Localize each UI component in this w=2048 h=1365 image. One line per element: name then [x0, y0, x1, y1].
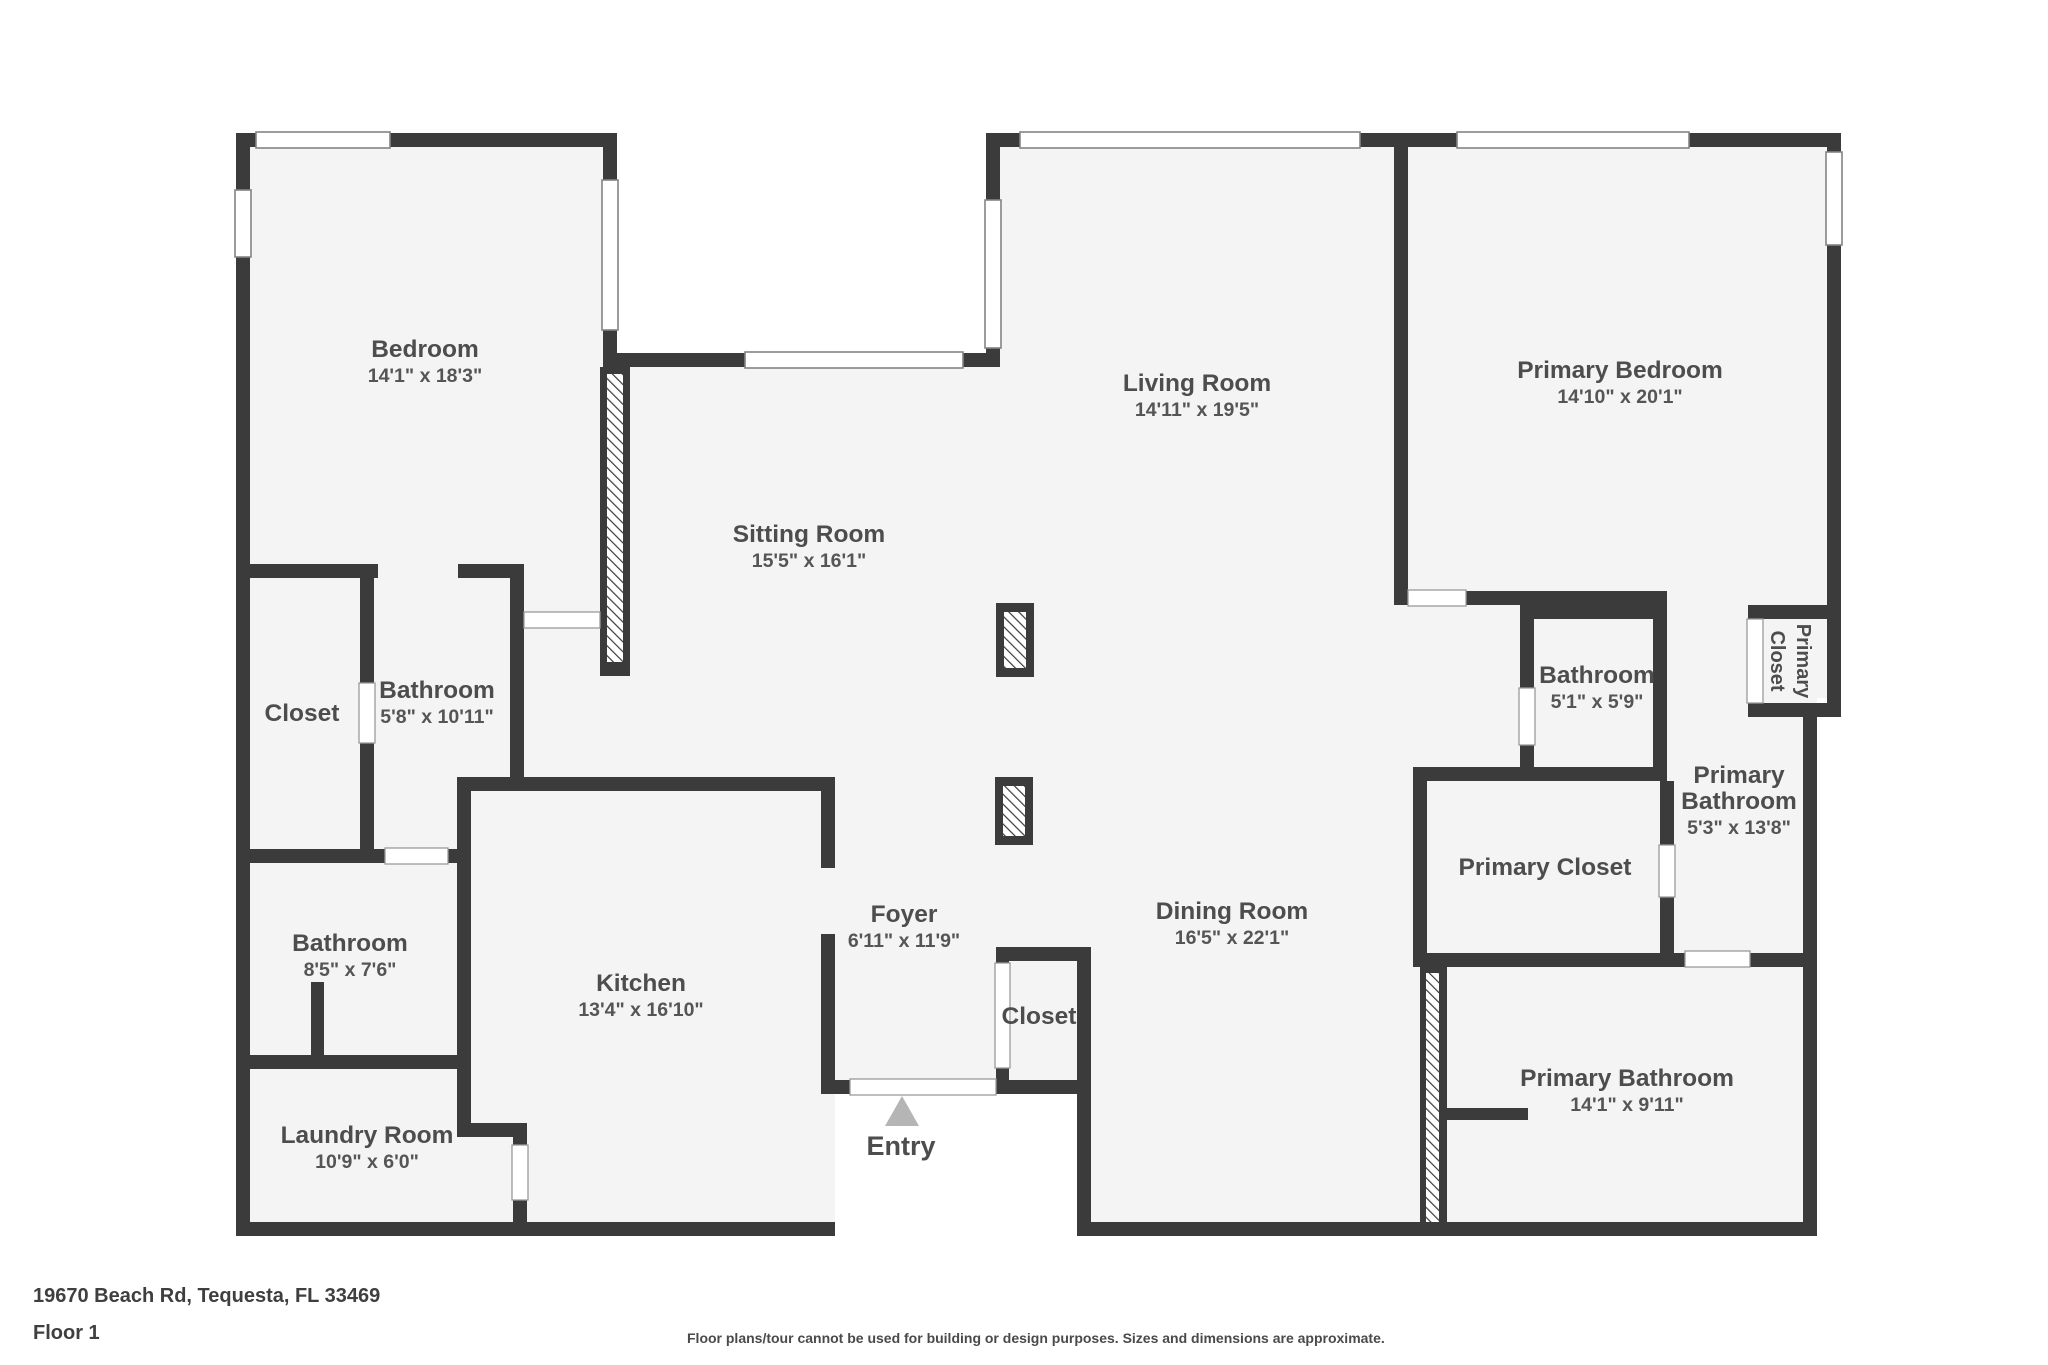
- wall-segment: [1413, 767, 1667, 781]
- wall-segment: [1413, 767, 1427, 967]
- floor-label: Floor 1: [33, 1322, 100, 1345]
- window: [1457, 132, 1689, 148]
- hatched-wall-fill: [607, 374, 623, 662]
- hatched-wall-fill: [1003, 786, 1025, 836]
- hatched-wall-fill: [1004, 612, 1026, 668]
- room-label: Dining Room: [1156, 898, 1308, 925]
- wall-segment: [311, 982, 324, 1055]
- door-opening: [512, 1145, 528, 1200]
- door-opening: [359, 683, 375, 743]
- room-dimensions: 8'5" x 7'6": [304, 959, 397, 981]
- window: [985, 200, 1001, 348]
- window: [602, 180, 618, 330]
- door-opening: [1408, 590, 1466, 606]
- room-dimensions: 5'8" x 10'11": [380, 706, 493, 728]
- hatched-wall-fill: [1426, 973, 1439, 1223]
- door-opening: [1519, 688, 1535, 745]
- room-label: Kitchen: [596, 970, 686, 997]
- room-dimensions: 14'11" x 19'5": [1135, 399, 1259, 421]
- room-dimensions: 6'11" x 11'9": [848, 930, 960, 952]
- room-dimensions: 14'1" x 18'3": [368, 365, 483, 387]
- wall-segment: [996, 947, 1091, 961]
- door-opening: [820, 868, 836, 934]
- floor-plan-canvas: Bedroom14'1" x 18'3"Sitting Room15'5" x …: [0, 0, 2048, 1365]
- wall-segment: [457, 1123, 527, 1137]
- room-label: Closet: [1766, 630, 1788, 691]
- wall-segment: [821, 791, 835, 1094]
- wall-segment: [510, 578, 524, 791]
- room-label: Sitting Room: [733, 521, 885, 548]
- room-label: Entry: [866, 1131, 935, 1161]
- door-opening: [378, 563, 458, 579]
- wall-segment: [1803, 703, 1817, 1236]
- door-opening: [1659, 845, 1675, 897]
- room-dimensions: 10'9" x 6'0": [315, 1151, 419, 1173]
- door-opening: [850, 1079, 996, 1095]
- outside-area: [617, 98, 987, 355]
- room-label: Closet: [1002, 1003, 1077, 1030]
- room-dimensions: 14'10" x 20'1": [1557, 386, 1682, 408]
- outside-area: [835, 1094, 1077, 1264]
- room-dimensions: 13'4" x 16'10": [578, 999, 703, 1021]
- room-label: Closet: [265, 700, 340, 727]
- window: [745, 352, 963, 368]
- wall-segment: [457, 791, 471, 1123]
- room-label: Bathroom: [292, 930, 408, 957]
- window: [256, 132, 390, 148]
- outside-area: [1817, 698, 1862, 1258]
- room-label: Bathroom: [1681, 788, 1797, 815]
- room-label: Primary Bathroom: [1520, 1065, 1734, 1092]
- property-address: 19670 Beach Rd, Tequesta, FL 33469: [33, 1285, 380, 1308]
- room-label: Bedroom: [371, 336, 479, 363]
- wall-segment: [1394, 133, 1408, 605]
- room-dimensions: 15'5" x 16'1": [752, 550, 867, 572]
- room-dimensions: 16'5" x 22'1": [1175, 927, 1290, 949]
- wall-segment: [1653, 605, 1667, 781]
- window: [1826, 152, 1842, 245]
- wall-segment: [236, 1055, 471, 1069]
- room-label: Bathroom: [1539, 662, 1655, 689]
- room-label: Primary: [1693, 762, 1785, 789]
- wall-segment: [1077, 947, 1091, 1236]
- room-dimensions: 5'1" x 5'9": [1551, 691, 1644, 713]
- window: [1020, 132, 1360, 148]
- door-opening: [1747, 619, 1763, 703]
- door-opening: [524, 612, 600, 628]
- room-dimensions: 14'1" x 9'11": [1570, 1094, 1683, 1116]
- room-label: Living Room: [1123, 370, 1271, 397]
- wall-segment: [1447, 1108, 1528, 1120]
- wall-segment: [236, 133, 250, 1236]
- door-opening: [385, 848, 448, 864]
- room-label: Primary Closet: [1459, 854, 1632, 881]
- disclaimer-text: Floor plans/tour cannot be used for buil…: [687, 1330, 1385, 1346]
- floor-plan: Bedroom14'1" x 18'3"Sitting Room15'5" x …: [0, 0, 2048, 1365]
- wall-segment: [236, 1222, 835, 1236]
- wall-segment: [1520, 605, 1667, 619]
- window: [235, 190, 251, 257]
- room-label: Primary Bedroom: [1517, 357, 1723, 384]
- room-label: Bathroom: [379, 677, 495, 704]
- room-dimensions: 5'3" x 13'8": [1687, 817, 1791, 839]
- room-label: Foyer: [871, 901, 938, 928]
- room-label: Laundry Room: [281, 1122, 454, 1149]
- wall-segment: [1077, 1222, 1817, 1236]
- door-opening: [1685, 951, 1750, 967]
- room-label: Primary: [1792, 624, 1814, 699]
